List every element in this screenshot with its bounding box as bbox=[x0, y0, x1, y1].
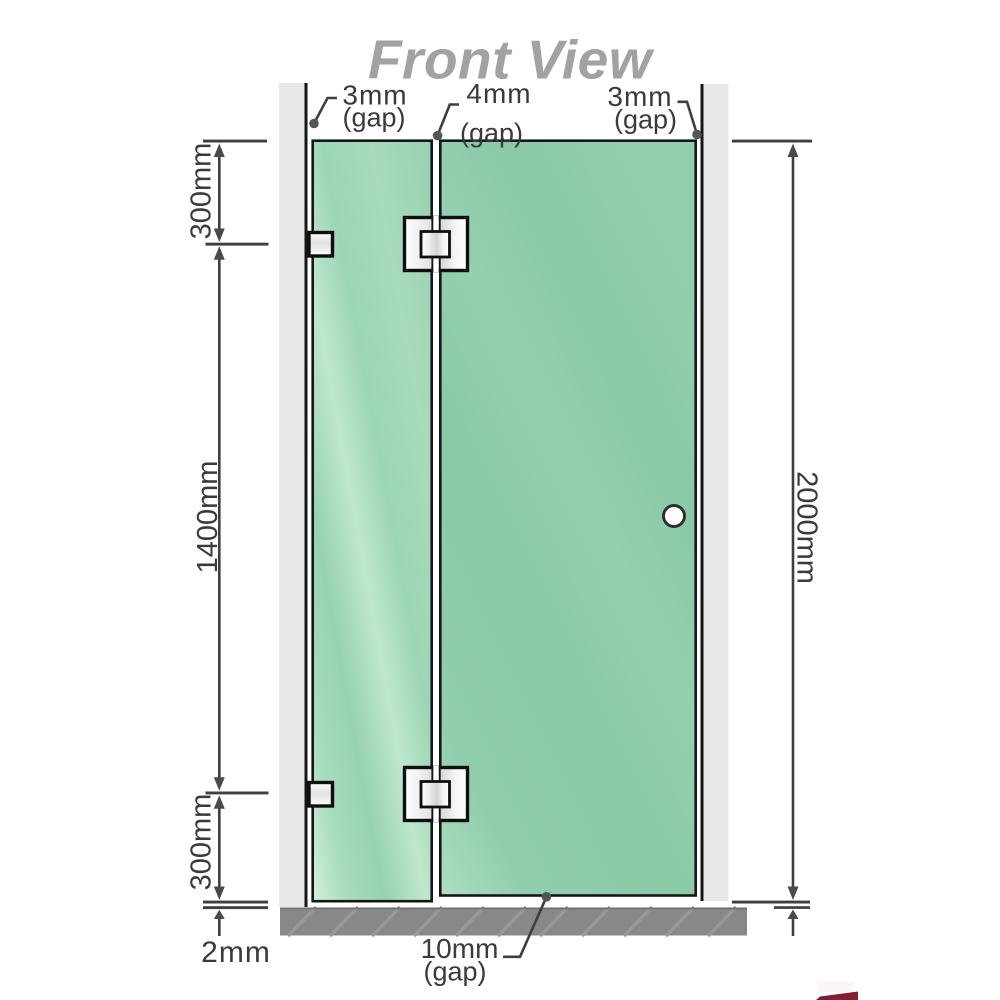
svg-text:300mm: 300mm bbox=[186, 143, 218, 240]
svg-text:1400mm: 1400mm bbox=[192, 461, 224, 574]
svg-text:(gap): (gap) bbox=[460, 118, 523, 148]
svg-text:4mm: 4mm bbox=[466, 78, 531, 109]
svg-text:(gap): (gap) bbox=[423, 957, 486, 987]
svg-text:2mm: 2mm bbox=[201, 936, 271, 969]
svg-text:(gap): (gap) bbox=[614, 105, 677, 135]
svg-text:2000mm: 2000mm bbox=[791, 471, 823, 584]
svg-text:300mm: 300mm bbox=[186, 794, 218, 891]
svg-text:(gap): (gap) bbox=[342, 103, 405, 133]
